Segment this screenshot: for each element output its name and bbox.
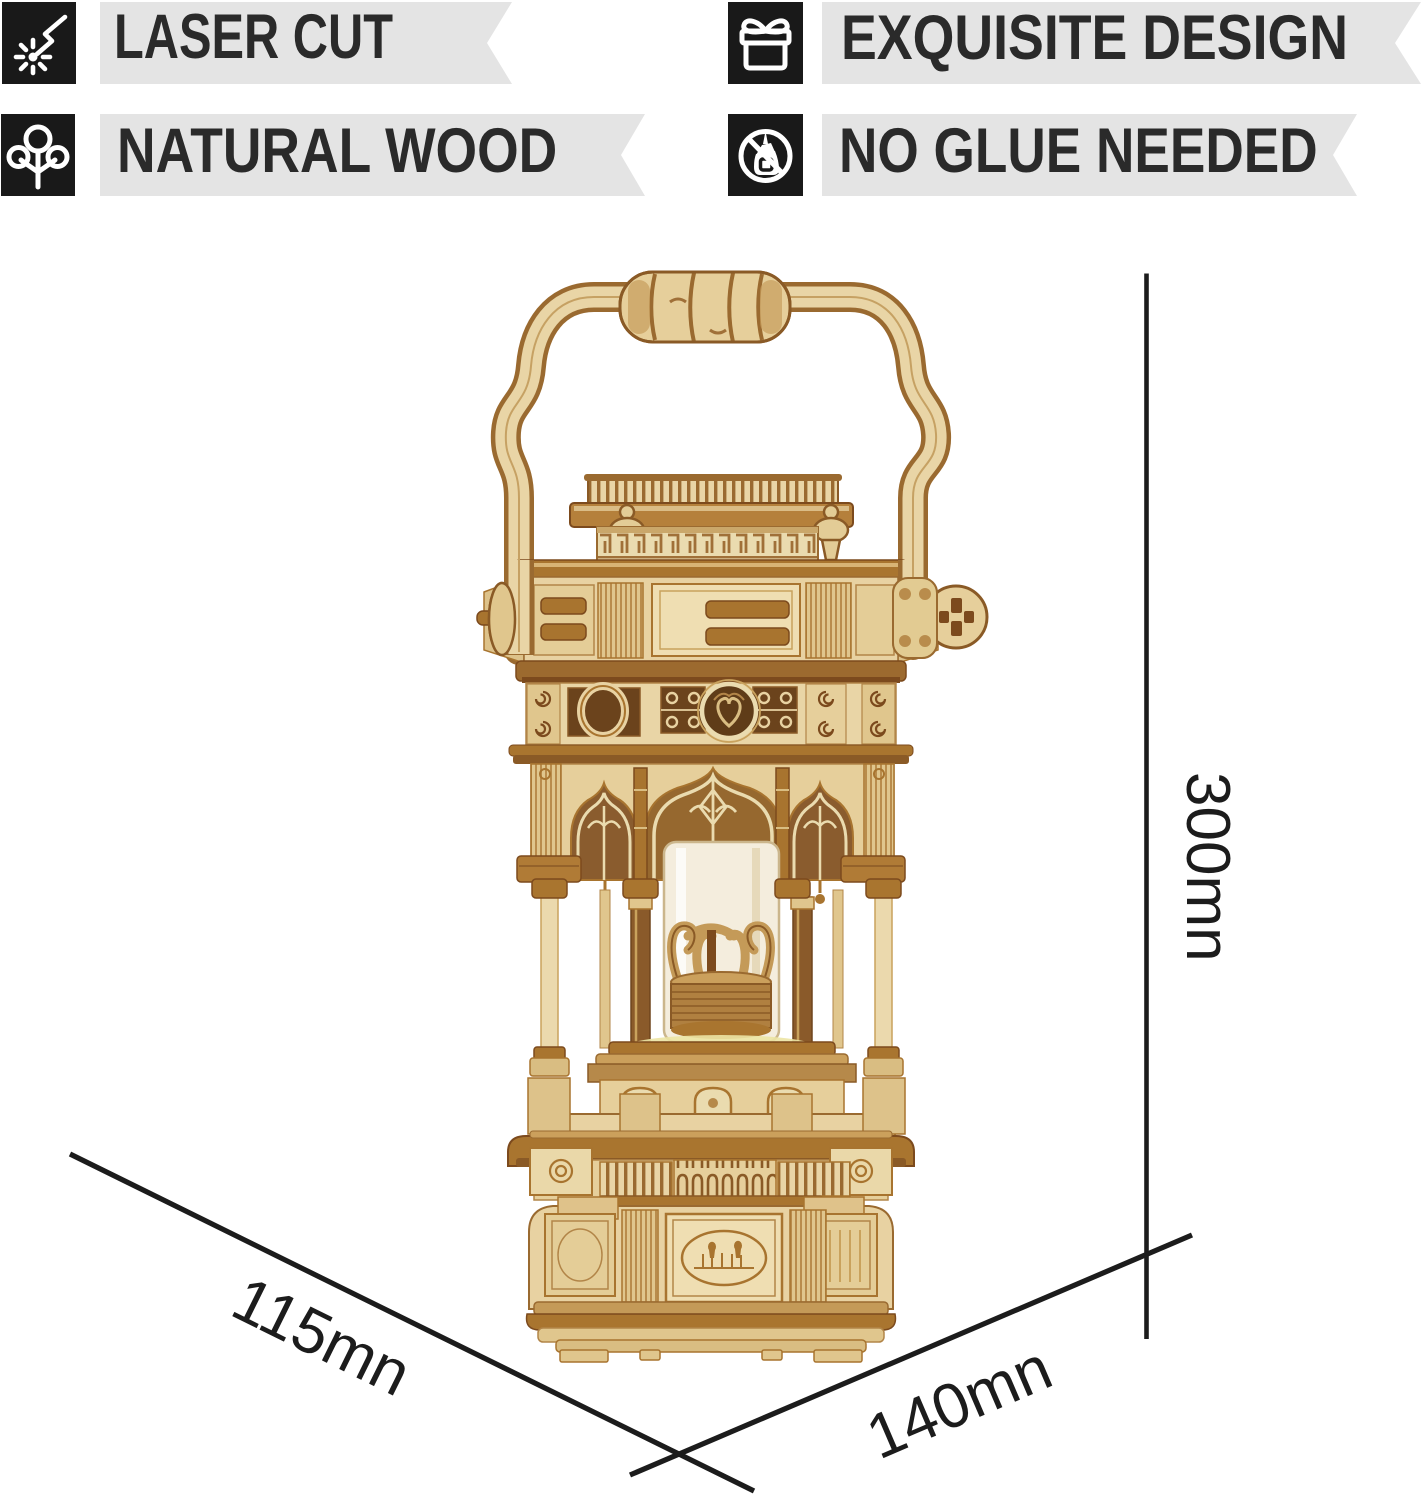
svg-text:300mn: 300mn [1173, 772, 1242, 962]
svg-text:115mn: 115mn [222, 1264, 422, 1410]
